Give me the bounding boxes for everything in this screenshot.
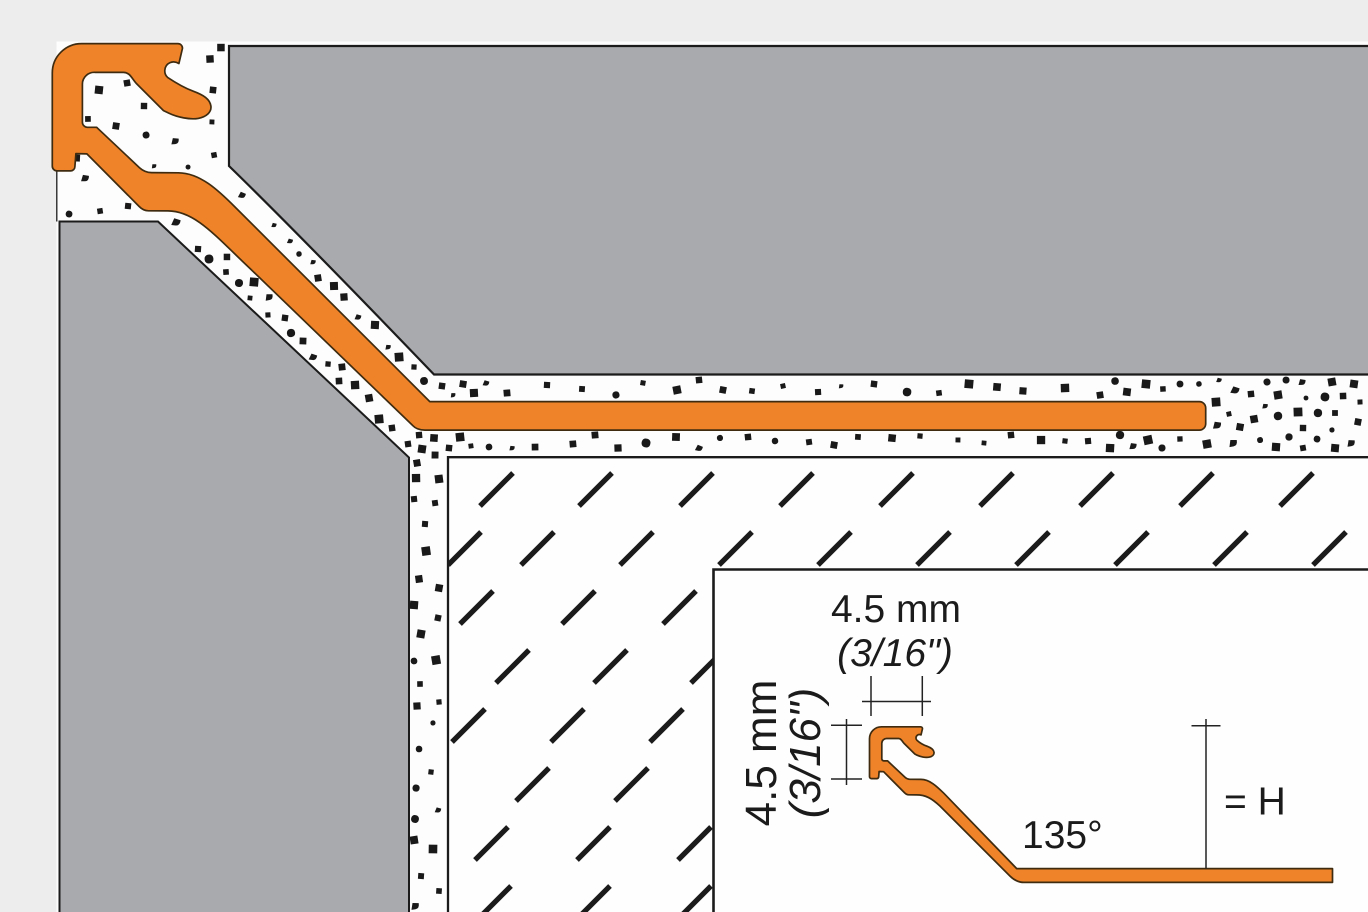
svg-text:4.5 mm: 4.5 mm (831, 588, 961, 631)
svg-text:(3/16"): (3/16") (837, 632, 953, 675)
svg-text:4.5 mm: 4.5 mm (737, 680, 786, 827)
svg-text:= H: = H (1224, 781, 1286, 824)
svg-text:(3/16"): (3/16") (781, 688, 830, 819)
svg-text:135°: 135° (1022, 814, 1103, 857)
